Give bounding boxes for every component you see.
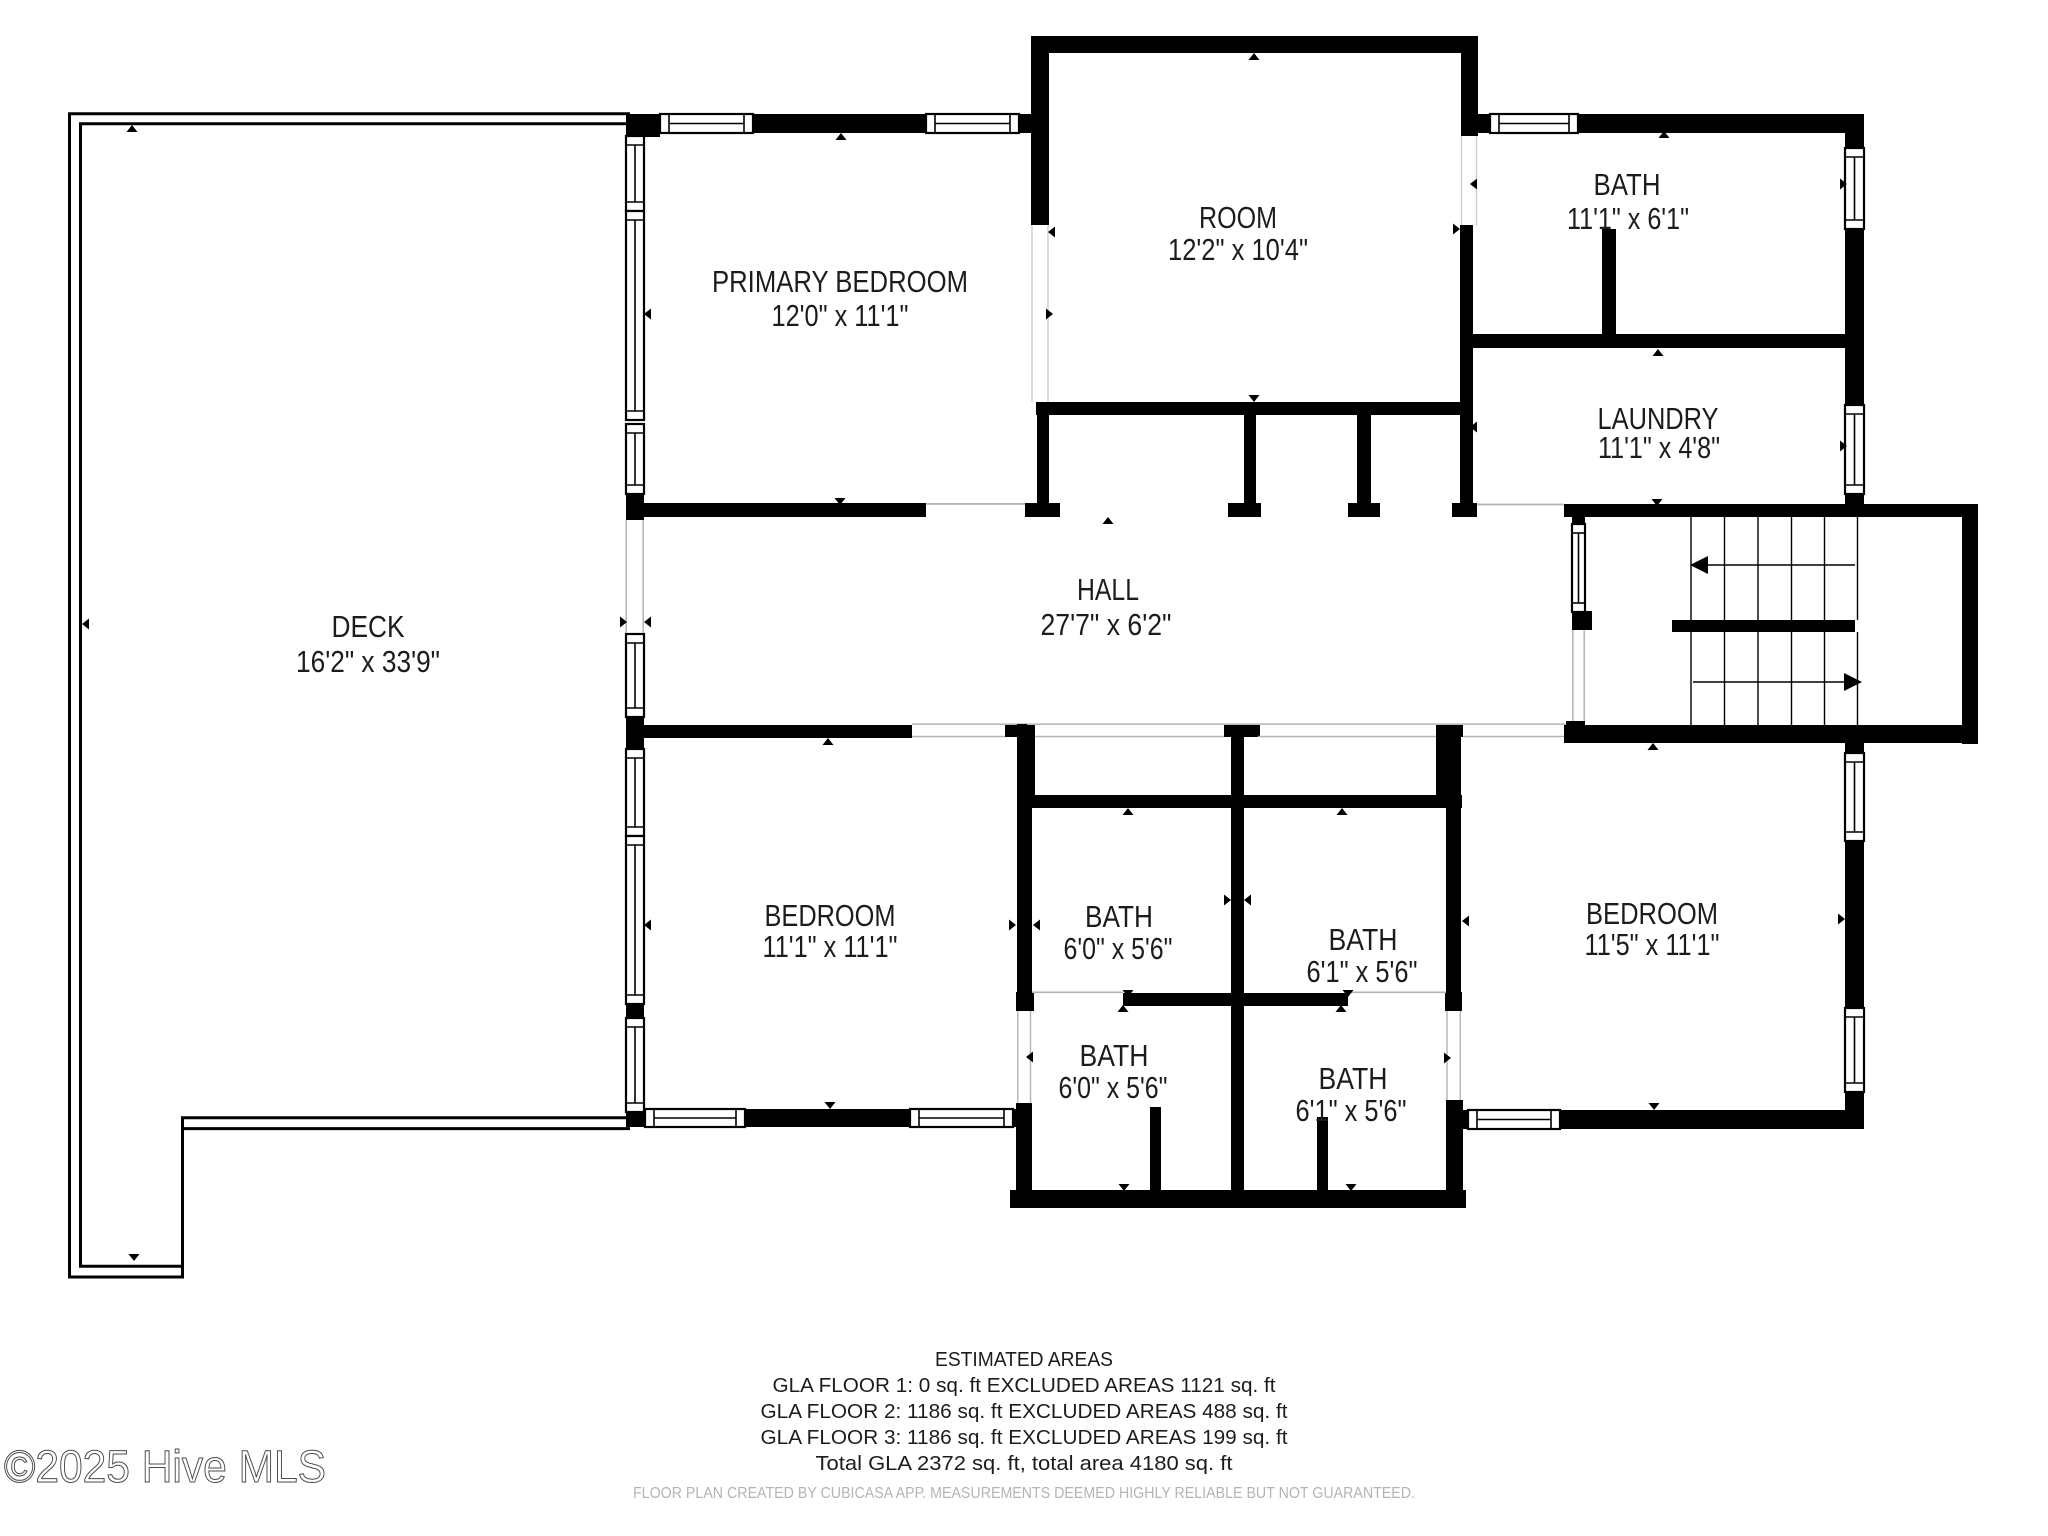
svg-text:BATH: BATH <box>1329 922 1398 957</box>
svg-text:GLA FLOOR 3: 1186 sq. ft EXCLU: GLA FLOOR 3: 1186 sq. ft EXCLUDED AREAS … <box>761 1427 1288 1449</box>
svg-text:12'0" x 11'1": 12'0" x 11'1" <box>772 298 909 333</box>
svg-text:DECK: DECK <box>332 609 405 644</box>
svg-text:6'0" x 5'6": 6'0" x 5'6" <box>1059 1070 1168 1105</box>
svg-text:12'2" x 10'4": 12'2" x 10'4" <box>1168 232 1308 267</box>
svg-text:11'1" x 11'1": 11'1" x 11'1" <box>763 929 898 964</box>
svg-text:GLA FLOOR 1: 0 sq. ft EXCLUDED: GLA FLOOR 1: 0 sq. ft EXCLUDED AREAS 112… <box>773 1375 1276 1397</box>
svg-text:27'7" x 6'2": 27'7" x 6'2" <box>1041 607 1172 642</box>
svg-text:6'1" x 5'6": 6'1" x 5'6" <box>1296 1093 1407 1128</box>
svg-text:11'5" x 11'1": 11'5" x 11'1" <box>1585 927 1720 962</box>
svg-text:BEDROOM: BEDROOM <box>765 898 896 933</box>
svg-text:BATH: BATH <box>1319 1061 1388 1096</box>
svg-text:BATH: BATH <box>1085 899 1153 934</box>
svg-text:Total GLA 2372 sq. ft, total a: Total GLA 2372 sq. ft, total area 4180 s… <box>816 1453 1233 1475</box>
svg-text:©2025 Hive MLS: ©2025 Hive MLS <box>4 1441 326 1492</box>
svg-text:FLOOR PLAN CREATED BY CUBICASA: FLOOR PLAN CREATED BY CUBICASA APP. MEAS… <box>633 1485 1415 1502</box>
svg-text:BATH: BATH <box>1080 1038 1149 1073</box>
svg-text:6'0" x 5'6": 6'0" x 5'6" <box>1064 931 1173 966</box>
svg-text:16'2" x 33'9": 16'2" x 33'9" <box>296 644 440 679</box>
svg-text:11'1" x 4'8": 11'1" x 4'8" <box>1598 430 1720 465</box>
svg-text:BEDROOM: BEDROOM <box>1586 896 1718 931</box>
svg-text:ROOM: ROOM <box>1199 200 1277 235</box>
svg-text:PRIMARY BEDROOM: PRIMARY BEDROOM <box>712 264 968 299</box>
svg-text:11'1" x 6'1": 11'1" x 6'1" <box>1567 201 1689 236</box>
svg-text:6'1" x 5'6": 6'1" x 5'6" <box>1307 954 1418 989</box>
svg-text:BATH: BATH <box>1594 167 1661 202</box>
svg-text:HALL: HALL <box>1077 572 1139 607</box>
svg-text:ESTIMATED AREAS: ESTIMATED AREAS <box>935 1349 1113 1371</box>
svg-text:GLA FLOOR 2: 1186 sq. ft EXCLU: GLA FLOOR 2: 1186 sq. ft EXCLUDED AREAS … <box>761 1401 1288 1423</box>
